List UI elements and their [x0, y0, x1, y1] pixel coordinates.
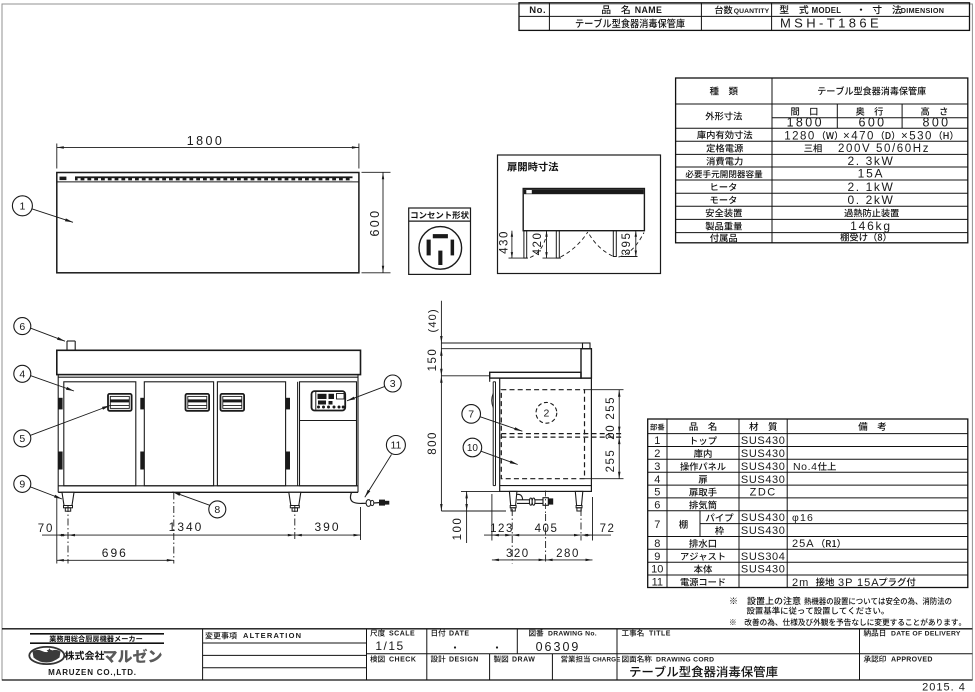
- svg-text:1/15: 1/15: [375, 639, 404, 653]
- svg-text:25A: 25A: [792, 538, 815, 550]
- svg-text:3P: 3P: [838, 577, 853, 589]
- svg-text:1340: 1340: [169, 520, 204, 534]
- svg-text:6: 6: [19, 321, 25, 333]
- svg-text:×470: ×470: [843, 130, 875, 142]
- svg-text:1280: 1280: [784, 130, 816, 142]
- svg-text:420: 420: [532, 232, 544, 256]
- svg-text:70: 70: [38, 523, 54, 535]
- svg-text:2: 2: [543, 408, 549, 420]
- svg-text:800: 800: [427, 431, 439, 455]
- svg-text:2. 1kW: 2. 1kW: [848, 180, 895, 194]
- svg-text:ALTERATION: ALTERATION: [243, 631, 302, 640]
- svg-text:15A: 15A: [857, 577, 880, 589]
- svg-text:CHARGE: CHARGE: [593, 657, 621, 664]
- svg-text:DRAWING CORD: DRAWING CORD: [656, 657, 714, 664]
- svg-text:DATE: DATE: [449, 631, 470, 638]
- svg-text:11: 11: [390, 440, 401, 452]
- svg-text:9: 9: [19, 479, 25, 491]
- svg-text:11: 11: [652, 576, 663, 588]
- svg-text:600: 600: [858, 115, 886, 129]
- svg-text:123: 123: [490, 523, 514, 535]
- svg-text:800: 800: [922, 115, 950, 129]
- svg-text:395: 395: [621, 232, 633, 256]
- svg-text:MARUZEN CO.,LTD.: MARUZEN CO.,LTD.: [48, 668, 137, 677]
- svg-text:DATE OF DELIVERY: DATE OF DELIVERY: [891, 631, 961, 638]
- svg-text:1800: 1800: [187, 134, 224, 148]
- svg-text:DIMENSION: DIMENSION: [901, 6, 944, 15]
- svg-text:2015. 4: 2015. 4: [922, 682, 966, 692]
- svg-text:280: 280: [556, 548, 580, 560]
- svg-text:100: 100: [452, 517, 464, 541]
- svg-text:9: 9: [654, 551, 660, 563]
- svg-text:ZDC: ZDC: [750, 487, 777, 499]
- svg-text:No.: No.: [529, 5, 546, 16]
- svg-text:5: 5: [654, 487, 660, 499]
- svg-text:150: 150: [427, 348, 439, 372]
- svg-text:CHECK: CHECK: [389, 657, 416, 664]
- svg-text:7: 7: [468, 409, 474, 421]
- svg-text:APPROVED: APPROVED: [891, 657, 933, 664]
- svg-text:QUANTITY: QUANTITY: [734, 8, 770, 15]
- svg-text:NAME: NAME: [635, 5, 663, 15]
- svg-text:TITLE: TITLE: [649, 631, 671, 638]
- svg-text:4: 4: [654, 474, 660, 486]
- svg-text:255: 255: [605, 449, 617, 473]
- svg-text:255: 255: [605, 396, 617, 420]
- svg-text:SUS430: SUS430: [741, 435, 786, 447]
- svg-text:(40): (40): [427, 308, 439, 332]
- svg-text:SUS430: SUS430: [741, 474, 786, 486]
- svg-text:×530: ×530: [901, 130, 933, 142]
- svg-text:1800: 1800: [787, 115, 824, 129]
- svg-text:SUS430: SUS430: [741, 564, 786, 576]
- svg-text:10: 10: [651, 564, 663, 576]
- svg-text:20: 20: [605, 424, 617, 440]
- svg-text:8: 8: [214, 504, 220, 516]
- svg-text:5: 5: [19, 433, 25, 445]
- svg-text:06309: 06309: [536, 640, 581, 654]
- svg-text:405: 405: [535, 523, 559, 535]
- svg-text:3: 3: [654, 461, 660, 473]
- svg-text:696: 696: [102, 546, 128, 560]
- svg-text:SUS430: SUS430: [741, 448, 786, 460]
- svg-text:SCALE: SCALE: [389, 631, 415, 638]
- svg-text:DESIGN: DESIGN: [449, 657, 479, 664]
- svg-text:SUS430: SUS430: [741, 461, 786, 473]
- svg-text:430: 430: [499, 230, 511, 254]
- svg-text:SUS430: SUS430: [741, 525, 786, 537]
- svg-text:7: 7: [654, 519, 660, 531]
- svg-text:6: 6: [654, 500, 660, 512]
- svg-text:0. 2kW: 0. 2kW: [848, 193, 895, 207]
- svg-text:φ16: φ16: [792, 512, 814, 524]
- svg-text:390: 390: [314, 520, 340, 534]
- svg-text:SUS430: SUS430: [741, 512, 786, 524]
- svg-text:146kg: 146kg: [850, 219, 892, 233]
- svg-text:3: 3: [390, 378, 396, 390]
- svg-text:1: 1: [19, 201, 25, 213]
- svg-text:2m: 2m: [792, 577, 809, 589]
- svg-text:No.4: No.4: [793, 461, 818, 473]
- svg-text:4: 4: [19, 369, 25, 381]
- svg-text:10: 10: [467, 443, 479, 454]
- svg-text:8: 8: [654, 538, 660, 550]
- svg-text:72: 72: [600, 523, 616, 535]
- svg-text:1: 1: [654, 435, 660, 447]
- svg-text:MSH-T186E: MSH-T186E: [780, 16, 882, 31]
- svg-text:600: 600: [368, 208, 382, 236]
- svg-text:DRAWING No.: DRAWING No.: [548, 631, 597, 638]
- svg-text:DRAW: DRAW: [512, 657, 535, 664]
- svg-text:MODEL: MODEL: [812, 6, 842, 15]
- svg-text:15A: 15A: [858, 167, 885, 181]
- svg-text:SUS304: SUS304: [741, 551, 786, 563]
- svg-text:2: 2: [654, 448, 660, 460]
- svg-text:320: 320: [506, 548, 530, 560]
